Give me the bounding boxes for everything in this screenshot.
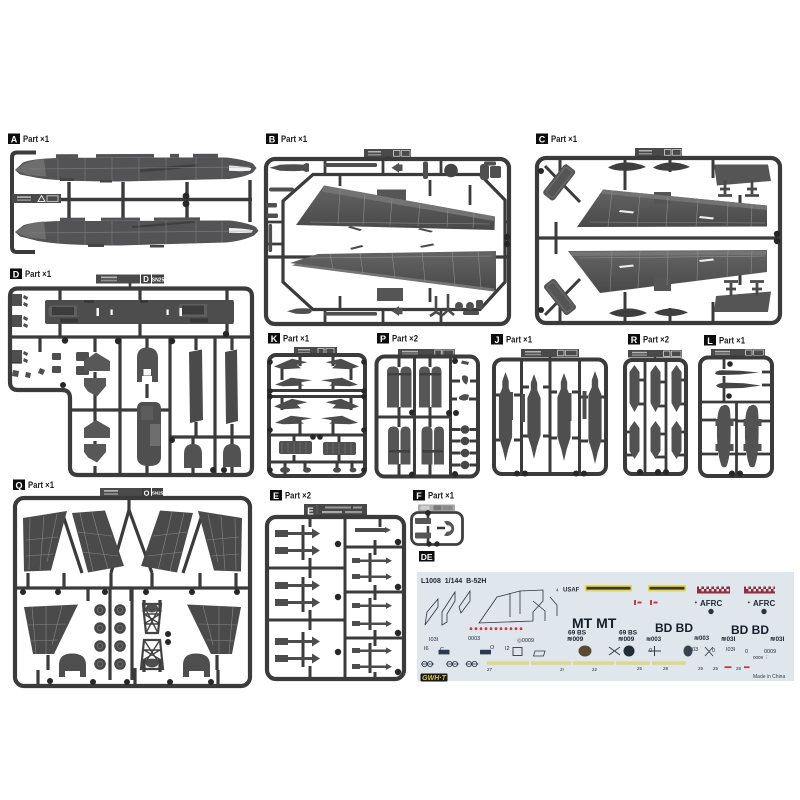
svg-text:USAF: USAF [563,588,580,594]
svg-text:DE: DE [421,552,433,562]
svg-text:I03I: I03I [726,647,736,653]
svg-text:I6: I6 [424,646,429,652]
svg-text:✦: ✦ [747,600,751,605]
svg-text:Part ×1: Part ×1 [283,334,310,345]
svg-text:29: 29 [698,666,704,671]
svg-text:≋003: ≋003 [694,636,710,642]
svg-text:Part ×2: Part ×2 [285,491,311,502]
svg-text:27: 27 [487,667,493,672]
svg-text:J: J [494,335,499,345]
svg-text:28: 28 [736,666,742,671]
svg-text:D: D [143,275,149,284]
svg-text:Part ×1: Part ×1 [23,134,50,145]
svg-text:Part ×2: Part ×2 [643,335,669,346]
svg-text:≋009: ≋009 [618,636,635,643]
svg-text:≋009: ≋009 [567,636,584,643]
svg-text:P: P [380,334,386,344]
svg-text:✦: ✦ [694,600,698,605]
svg-text:GWH·T: GWH·T [422,675,446,682]
svg-text:D: D [13,269,20,279]
svg-text:0003: 0003 [468,636,480,642]
svg-text:Part ×1: Part ×1 [281,134,308,145]
svg-text:≋03I: ≋03I [770,636,785,643]
svg-text:C: C [539,134,546,144]
svg-text:≋003: ≋003 [646,637,662,643]
svg-text:Part ×1: Part ×1 [551,134,578,145]
svg-text:0009 ⋮: 0009 ⋮ [753,655,769,660]
svg-text:2I: 2I [560,667,564,672]
svg-text:0: 0 [712,648,715,654]
svg-text:Part ×1: Part ×1 [719,336,746,347]
svg-text:25: 25 [637,666,643,671]
svg-text:Part ×1: Part ×1 [506,335,533,346]
svg-text:L: L [707,336,713,346]
svg-text:F: F [416,491,422,501]
svg-text:E: E [273,491,279,501]
svg-text:BD BD: BD BD [655,621,693,635]
svg-text:K: K [271,334,278,344]
svg-text:22: 22 [592,667,598,672]
svg-text:Part ×1: Part ×1 [428,491,455,502]
svg-text:BD BD: BD BD [731,623,769,637]
svg-text:R: R [631,335,638,345]
svg-text:I03I: I03I [429,637,439,643]
svg-text:Part ×2: Part ×2 [392,334,418,345]
svg-text:A: A [11,134,18,144]
svg-text:SN25: SN25 [152,277,165,283]
svg-text:SN25: SN25 [152,491,164,496]
svg-text:Q: Q [15,480,22,490]
svg-text:Made in China: Made in China [753,674,785,680]
svg-text:◎0009: ◎0009 [517,638,534,644]
svg-text:L1008 1/144 B-52H: L1008 1/144 B-52H [421,578,486,585]
svg-text:Part ×1: Part ×1 [25,269,52,280]
svg-text:25: 25 [713,666,719,671]
svg-text:≋03I: ≋03I [721,636,736,643]
svg-text:0: 0 [745,649,748,655]
svg-text:B: B [269,134,276,144]
svg-text:AFRC: AFRC [753,599,775,608]
svg-text:AFRC: AFRC [700,599,722,608]
svg-text:28: 28 [663,666,669,671]
svg-text:Part ×1: Part ×1 [28,480,55,491]
svg-text:I2: I2 [505,646,510,652]
